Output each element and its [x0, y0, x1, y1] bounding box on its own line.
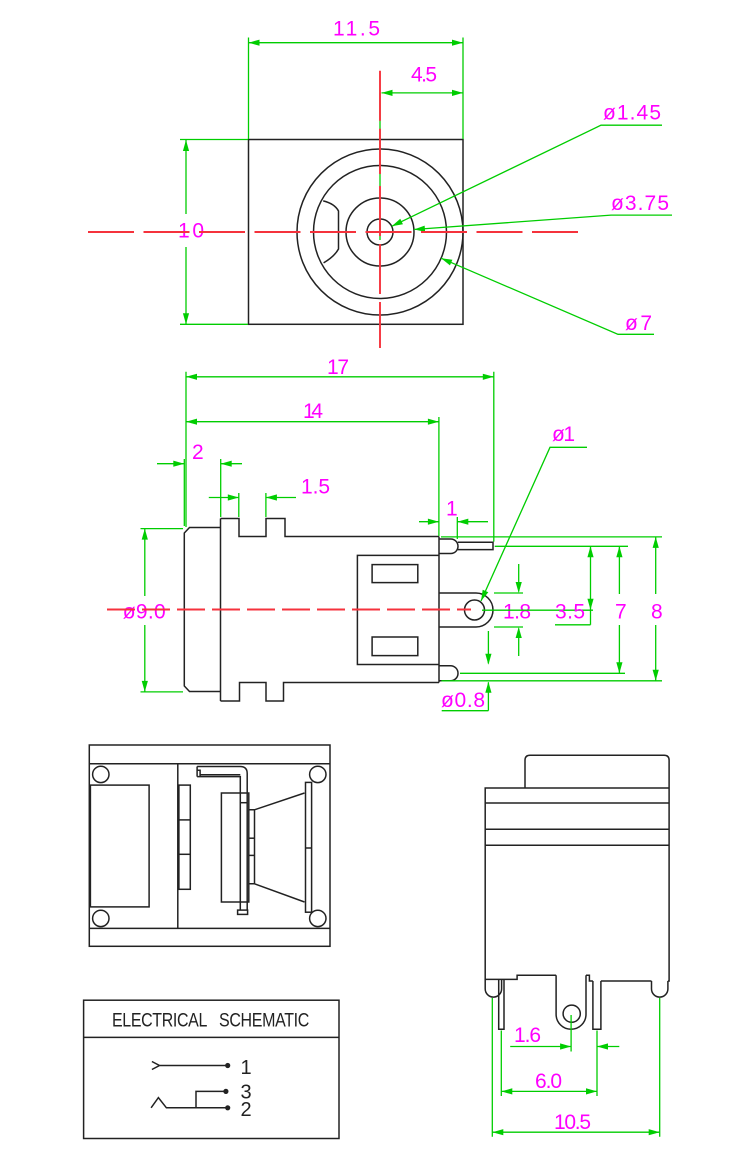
- svg-text:ø3.75: ø3.75: [611, 192, 669, 215]
- svg-text:1.5: 1.5: [301, 476, 330, 499]
- svg-text:10: 10: [178, 220, 204, 243]
- svg-text:ELECTRICAL: ELECTRICAL: [112, 1011, 207, 1032]
- svg-text:3.5: 3.5: [555, 601, 585, 624]
- svg-text:17: 17: [327, 356, 349, 379]
- svg-text:1.6: 1.6: [514, 1024, 541, 1047]
- svg-text:1.8: 1.8: [503, 601, 531, 624]
- svg-text:ø1.45: ø1.45: [603, 102, 661, 125]
- svg-text:1: 1: [241, 1057, 252, 1079]
- svg-text:ø1: ø1: [552, 423, 575, 446]
- svg-text:11.5: 11.5: [333, 18, 380, 41]
- svg-text:10.5: 10.5: [554, 1111, 591, 1134]
- svg-text:SCHEMATIC: SCHEMATIC: [219, 1011, 309, 1032]
- svg-text:7: 7: [615, 601, 627, 624]
- svg-text:2: 2: [192, 441, 204, 464]
- svg-text:14: 14: [303, 400, 323, 423]
- svg-text:4.5: 4.5: [411, 64, 437, 87]
- svg-text:8: 8: [651, 601, 663, 624]
- svg-text:2: 2: [241, 1099, 252, 1121]
- svg-text:1: 1: [446, 498, 458, 521]
- svg-text:6.0: 6.0: [535, 1070, 562, 1093]
- svg-text:ø7: ø7: [625, 312, 652, 335]
- svg-text:ø9.0: ø9.0: [123, 601, 166, 624]
- svg-text:ø0.8: ø0.8: [441, 689, 485, 712]
